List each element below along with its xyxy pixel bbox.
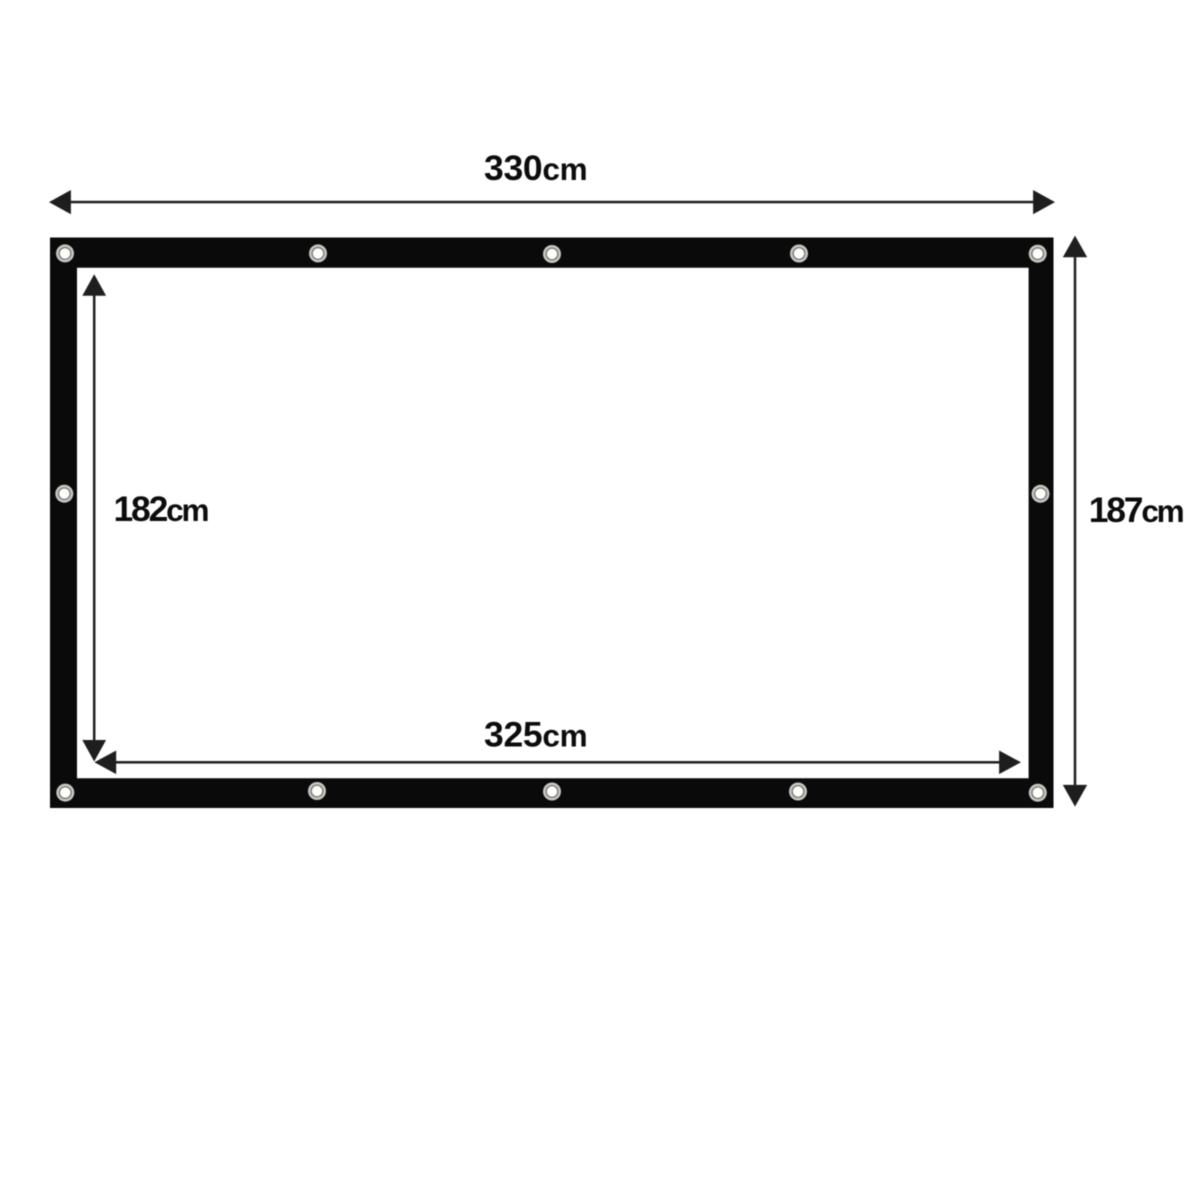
svg-text:182cm: 182cm: [114, 489, 209, 529]
svg-text:330cm: 330cm: [484, 148, 587, 188]
svg-text:187cm: 187cm: [1089, 490, 1184, 530]
svg-text:325cm: 325cm: [484, 714, 587, 754]
